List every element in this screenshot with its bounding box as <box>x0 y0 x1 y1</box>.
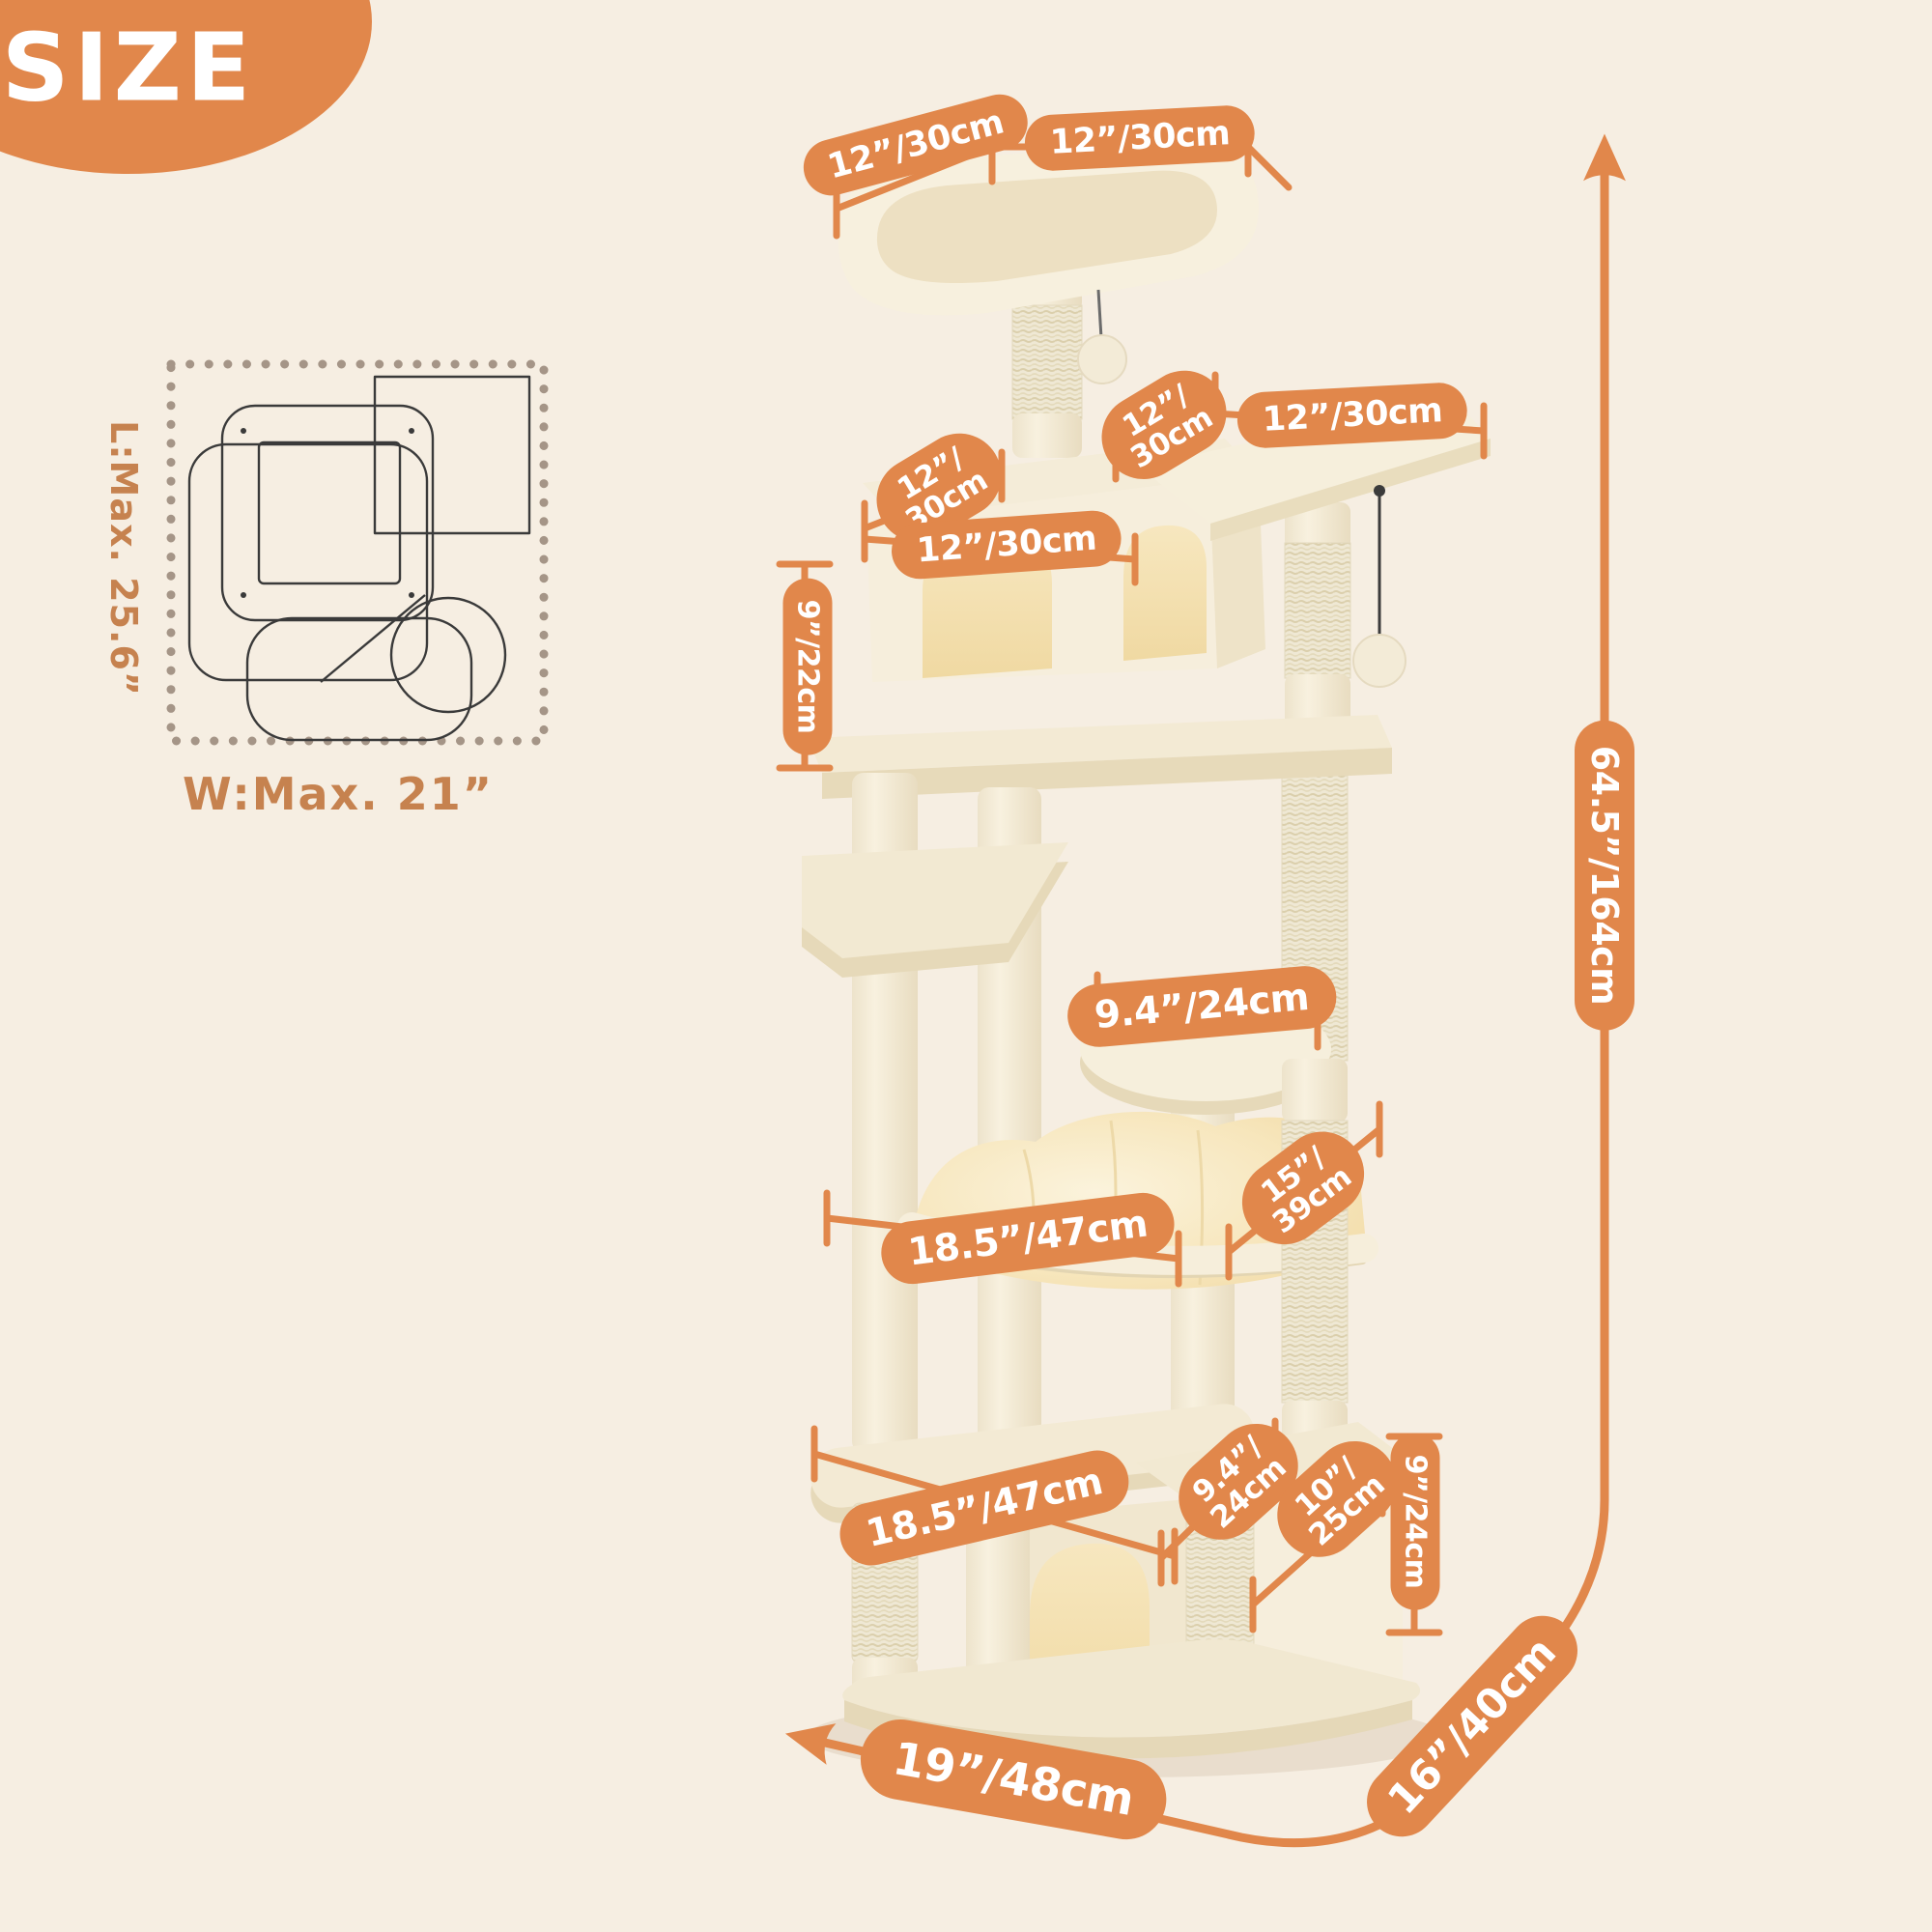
size-badge-title: SIZE <box>2 14 256 123</box>
pompom-top <box>1078 335 1126 384</box>
footprint-length-label: L:Max. 25.6” <box>102 420 145 696</box>
dim-condo-height: 9”/22cm <box>783 579 833 755</box>
pompom-right <box>1353 635 1406 687</box>
dim-lower-condo-height: 9”/24cm <box>1391 1434 1440 1610</box>
size-infographic: SIZE L:Max. 25.6” W:Max. 21” 12”/30cm 12… <box>0 0 1932 1932</box>
scene-graphics <box>0 0 1932 1932</box>
footprint-width-label: W:Max. 21” <box>183 768 494 820</box>
dim-total-height: 64.5”/164cm <box>1575 721 1634 1031</box>
footprint-diagram <box>171 364 544 741</box>
